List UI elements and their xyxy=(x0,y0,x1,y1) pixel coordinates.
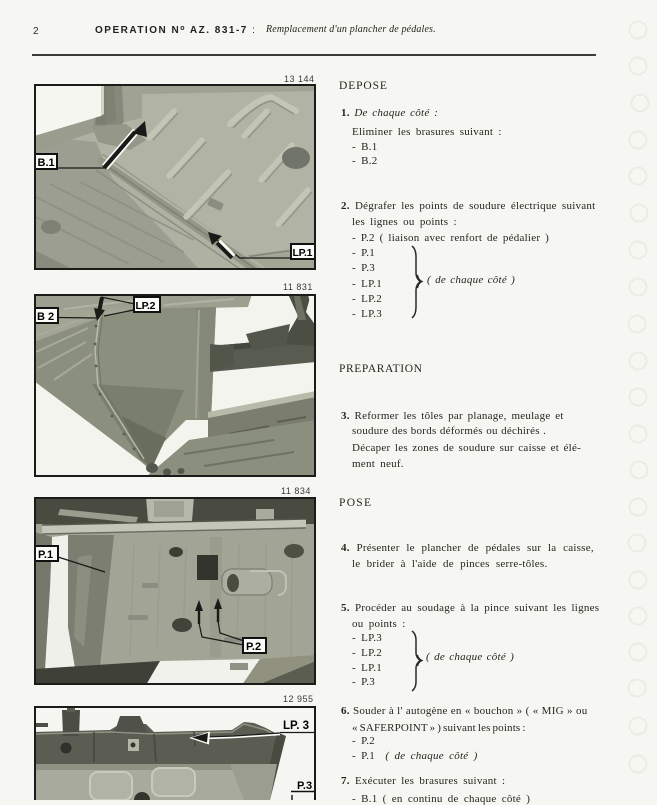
svg-text:LP.2: LP.2 xyxy=(136,300,156,312)
svg-text:LP.1: LP.1 xyxy=(293,247,313,259)
svg-text:P.1: P.1 xyxy=(38,549,53,561)
svg-text:P.2: P.2 xyxy=(246,641,261,653)
svg-text:B.1: B.1 xyxy=(38,157,55,169)
svg-text:P.3: P.3 xyxy=(297,780,312,792)
svg-text:B 2: B 2 xyxy=(37,311,54,323)
svg-text:LP. 3: LP. 3 xyxy=(283,720,309,732)
